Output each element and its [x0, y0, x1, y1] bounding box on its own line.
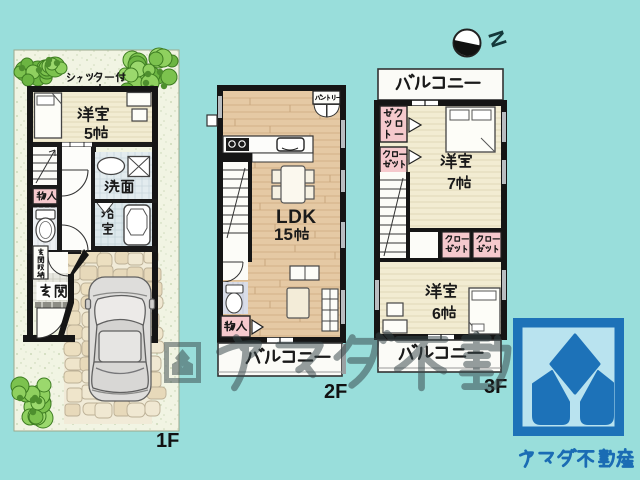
- svg-text:6: 6: [432, 306, 441, 323]
- svg-text:1F: 1F: [156, 430, 179, 452]
- svg-text:5: 5: [84, 126, 93, 143]
- svg-text:2F: 2F: [324, 381, 347, 403]
- svg-text:7: 7: [447, 176, 456, 193]
- svg-text:15: 15: [274, 225, 293, 244]
